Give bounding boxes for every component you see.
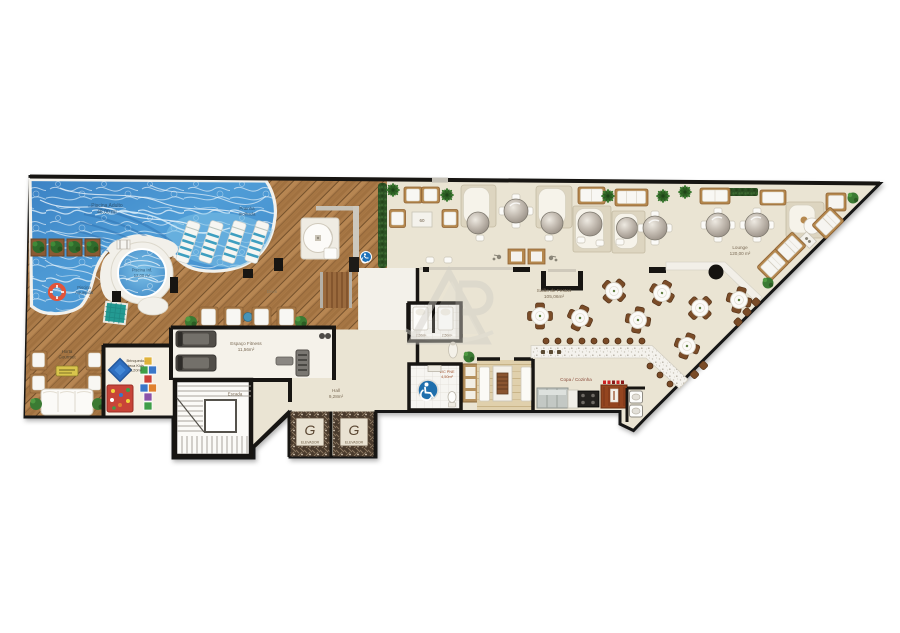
- svg-text:105,06m²: 105,06m²: [544, 294, 565, 300]
- svg-text:Copa / Cozinha: Copa / Cozinha: [560, 377, 592, 382]
- svg-text:120,00 m²: 120,00 m²: [730, 251, 751, 256]
- svg-text:Piscina Adulto: Piscina Adulto: [91, 203, 123, 209]
- svg-text:11,56m²: 11,56m²: [238, 347, 255, 352]
- svg-text:ELEVADOR: ELEVADOR: [301, 441, 320, 445]
- svg-text:5,20m²: 5,20m²: [130, 368, 143, 373]
- svg-text:Aquecida: Aquecida: [75, 290, 93, 295]
- svg-text:Deck: Deck: [267, 289, 278, 294]
- svg-text:Espaço Fitness: Espaço Fitness: [230, 341, 262, 346]
- svg-text:12,00 m²: 12,00 m²: [134, 273, 151, 278]
- svg-text:ELEVADOR: ELEVADOR: [345, 441, 364, 445]
- svg-text:Gourmet: Gourmet: [58, 355, 76, 360]
- svg-text:2,50m²: 2,50m²: [442, 334, 453, 338]
- svg-text:Lounge: Lounge: [732, 245, 748, 250]
- svg-text:Salão de Festas: Salão de Festas: [537, 288, 572, 294]
- svg-text:60: 60: [419, 218, 425, 223]
- svg-text:9,28m²: 9,28m²: [329, 394, 344, 399]
- svg-text:Hall: Hall: [332, 388, 340, 393]
- svg-text:G: G: [349, 422, 360, 438]
- svg-text:Escada: Escada: [228, 392, 243, 397]
- svg-text:4,50m²: 4,50m²: [441, 375, 454, 379]
- svg-text:G: G: [305, 422, 316, 438]
- svg-text:molhada: molhada: [239, 212, 256, 217]
- svg-text:Prainha: Prainha: [239, 206, 255, 211]
- svg-text:48,00 m²: 48,00 m²: [97, 210, 117, 216]
- svg-text:Horta: Horta: [62, 349, 73, 354]
- svg-text:WC PNE: WC PNE: [439, 370, 455, 374]
- svg-text:Piscina Inf.: Piscina Inf.: [132, 268, 152, 273]
